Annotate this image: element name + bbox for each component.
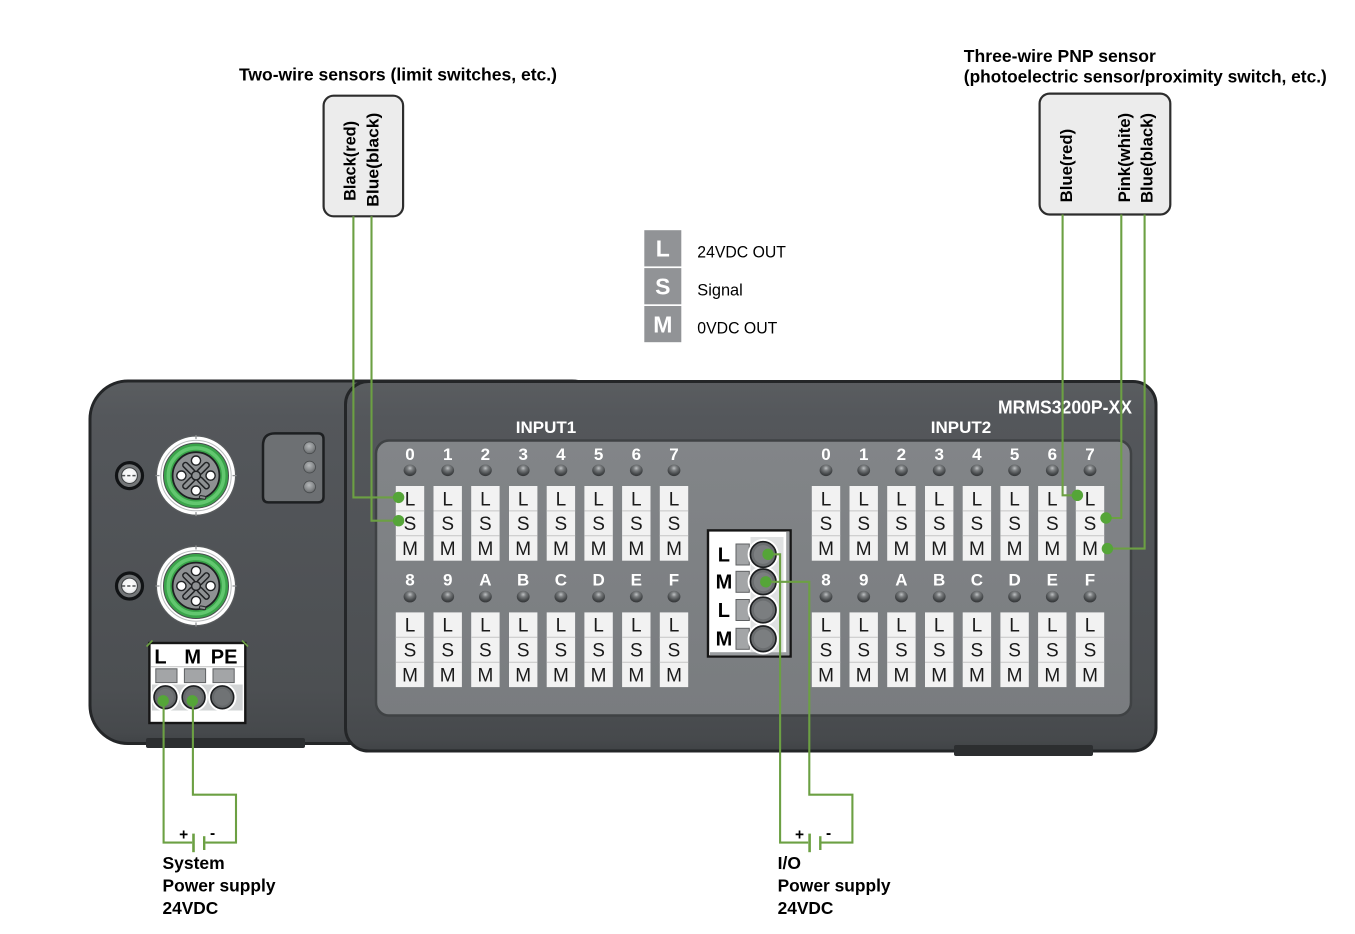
svg-text:INPUT2: INPUT2 <box>931 418 991 437</box>
svg-text:S: S <box>479 641 492 662</box>
svg-text:+: + <box>795 827 804 844</box>
svg-text:+: + <box>179 827 188 844</box>
svg-text:M: M <box>515 666 531 687</box>
svg-text:B: B <box>517 571 529 590</box>
svg-text:M: M <box>591 666 607 687</box>
svg-text:M: M <box>1082 666 1098 687</box>
svg-text:0: 0 <box>821 445 830 464</box>
svg-text:L: L <box>1047 489 1058 510</box>
svg-text:L: L <box>442 489 453 510</box>
svg-text:S: S <box>820 641 833 662</box>
svg-text:L: L <box>821 489 832 510</box>
svg-text:S: S <box>555 514 568 535</box>
svg-text:S: S <box>630 641 643 662</box>
svg-text:L: L <box>934 489 945 510</box>
svg-text:I/O: I/O <box>778 853 801 873</box>
svg-text:L: L <box>858 616 869 637</box>
svg-text:S: S <box>1046 641 1059 662</box>
svg-text:S: S <box>971 514 984 535</box>
svg-text:-: - <box>826 825 831 842</box>
svg-text:E: E <box>631 571 642 590</box>
svg-text:L: L <box>518 489 529 510</box>
svg-text:INPUT1: INPUT1 <box>516 418 576 437</box>
svg-text:Two-wire sensors (limit switch: Two-wire sensors (limit switches, etc.) <box>239 65 557 85</box>
svg-text:M: M <box>1007 539 1023 560</box>
svg-text:M: M <box>856 539 872 560</box>
svg-text:L: L <box>821 616 832 637</box>
svg-text:L: L <box>593 489 604 510</box>
svg-text:S: S <box>479 514 492 535</box>
svg-text:S: S <box>668 641 681 662</box>
svg-text:S: S <box>1084 514 1097 535</box>
svg-text:L: L <box>1085 616 1096 637</box>
svg-text:M: M <box>666 539 682 560</box>
svg-text:7: 7 <box>1085 445 1094 464</box>
svg-text:M: M <box>1044 666 1060 687</box>
svg-text:L: L <box>556 616 567 637</box>
svg-text:L: L <box>480 489 491 510</box>
svg-text:L: L <box>718 544 730 566</box>
svg-text:L: L <box>518 616 529 637</box>
svg-text:2: 2 <box>897 445 906 464</box>
svg-text:M: M <box>1007 666 1023 687</box>
svg-text:3: 3 <box>518 445 527 464</box>
svg-text:S: S <box>555 641 568 662</box>
svg-text:L: L <box>1085 489 1096 510</box>
svg-text:0: 0 <box>405 445 414 464</box>
svg-text:Blue(black): Blue(black) <box>364 113 383 207</box>
svg-text:D: D <box>592 571 604 590</box>
svg-text:S: S <box>820 514 833 535</box>
svg-text:L: L <box>1009 616 1020 637</box>
svg-text:L: L <box>593 616 604 637</box>
svg-text:M: M <box>553 666 569 687</box>
svg-text:1: 1 <box>859 445 868 464</box>
svg-text:7: 7 <box>669 445 678 464</box>
svg-text:M: M <box>969 539 985 560</box>
svg-text:M: M <box>628 666 644 687</box>
svg-text:M: M <box>553 539 569 560</box>
svg-text:M: M <box>477 539 493 560</box>
svg-text:L: L <box>858 489 869 510</box>
svg-text:M: M <box>591 539 607 560</box>
svg-text:S: S <box>668 514 681 535</box>
svg-text:S: S <box>857 641 870 662</box>
svg-text:(photoelectric sensor/proximit: (photoelectric sensor/proximity switch, … <box>964 66 1327 86</box>
svg-text:System: System <box>163 853 225 873</box>
svg-text:8: 8 <box>405 571 414 590</box>
svg-text:S: S <box>933 641 946 662</box>
svg-text:L: L <box>480 616 491 637</box>
svg-text:L: L <box>631 489 642 510</box>
svg-text:M: M <box>716 629 733 651</box>
svg-text:E: E <box>1047 571 1058 590</box>
svg-text:L: L <box>934 616 945 637</box>
svg-text:S: S <box>933 514 946 535</box>
svg-text:L: L <box>669 489 680 510</box>
svg-text:L: L <box>631 616 642 637</box>
svg-text:L: L <box>442 616 453 637</box>
svg-text:L: L <box>896 489 907 510</box>
svg-text:M: M <box>184 647 201 669</box>
svg-text:9: 9 <box>859 571 868 590</box>
svg-text:A: A <box>895 571 907 590</box>
svg-text:4: 4 <box>972 445 982 464</box>
svg-text:M: M <box>402 539 418 560</box>
svg-text:M: M <box>818 539 834 560</box>
svg-text:M: M <box>628 539 644 560</box>
svg-text:F: F <box>1085 571 1095 590</box>
svg-text:M: M <box>440 666 456 687</box>
svg-text:Power supply: Power supply <box>163 876 276 896</box>
svg-text:S: S <box>441 641 454 662</box>
svg-text:S: S <box>517 641 530 662</box>
svg-text:S: S <box>895 514 908 535</box>
svg-text:Blue(red): Blue(red) <box>1057 129 1076 203</box>
svg-text:M: M <box>818 666 834 687</box>
svg-text:S: S <box>1008 514 1021 535</box>
svg-text:M: M <box>653 311 672 337</box>
svg-text:L: L <box>154 647 166 669</box>
svg-text:M: M <box>893 539 909 560</box>
svg-text:24VDC: 24VDC <box>163 898 219 918</box>
svg-text:M: M <box>716 572 733 594</box>
svg-text:24VDC: 24VDC <box>778 898 834 918</box>
svg-text:9: 9 <box>443 571 452 590</box>
svg-text:A: A <box>479 571 491 590</box>
svg-text:C: C <box>971 571 983 590</box>
svg-text:F: F <box>669 571 679 590</box>
svg-text:S: S <box>1008 641 1021 662</box>
svg-text:Black(red): Black(red) <box>341 121 360 201</box>
svg-text:6: 6 <box>632 445 641 464</box>
svg-text:5: 5 <box>1010 445 1019 464</box>
svg-text:L: L <box>972 616 983 637</box>
svg-text:C: C <box>555 571 567 590</box>
svg-text:M: M <box>515 539 531 560</box>
svg-text:0VDC OUT: 0VDC OUT <box>697 318 777 337</box>
svg-text:S: S <box>857 514 870 535</box>
svg-text:M: M <box>666 666 682 687</box>
svg-text:L: L <box>405 489 416 510</box>
svg-text:M: M <box>1044 539 1060 560</box>
svg-text:2: 2 <box>481 445 490 464</box>
svg-text:Power supply: Power supply <box>778 876 891 896</box>
svg-text:S: S <box>441 514 454 535</box>
svg-text:PE: PE <box>211 647 238 669</box>
svg-text:M: M <box>969 666 985 687</box>
svg-text:M: M <box>477 666 493 687</box>
svg-text:3: 3 <box>934 445 943 464</box>
svg-text:1: 1 <box>443 445 452 464</box>
svg-text:S: S <box>630 514 643 535</box>
svg-text:M: M <box>856 666 872 687</box>
svg-text:M: M <box>1082 539 1098 560</box>
svg-text:Three-wire PNP sensor: Three-wire PNP sensor <box>964 46 1156 66</box>
svg-text:L: L <box>896 616 907 637</box>
svg-text:L: L <box>556 489 567 510</box>
svg-text:S: S <box>592 514 605 535</box>
svg-text:M: M <box>931 666 947 687</box>
svg-text:L: L <box>1047 616 1058 637</box>
svg-text:Blue(black): Blue(black) <box>1137 113 1156 203</box>
svg-text:S: S <box>655 273 670 299</box>
svg-text:M: M <box>402 666 418 687</box>
svg-text:MRMS3200P-XX: MRMS3200P-XX <box>998 398 1132 418</box>
svg-text:S: S <box>971 641 984 662</box>
svg-text:S: S <box>404 641 417 662</box>
svg-text:Signal: Signal <box>697 281 743 300</box>
svg-text:Pink(white): Pink(white) <box>1115 113 1134 203</box>
svg-text:S: S <box>404 514 417 535</box>
svg-text:L: L <box>718 600 730 622</box>
svg-text:M: M <box>440 539 456 560</box>
svg-text:S: S <box>895 641 908 662</box>
svg-text:L: L <box>656 236 670 262</box>
svg-text:S: S <box>1084 641 1097 662</box>
svg-text:6: 6 <box>1048 445 1057 464</box>
svg-text:4: 4 <box>556 445 566 464</box>
svg-text:5: 5 <box>594 445 603 464</box>
svg-text:M: M <box>893 666 909 687</box>
svg-text:-: - <box>210 825 215 842</box>
svg-text:L: L <box>972 489 983 510</box>
svg-text:L: L <box>405 616 416 637</box>
svg-text:8: 8 <box>821 571 830 590</box>
svg-text:B: B <box>933 571 945 590</box>
svg-text:M: M <box>931 539 947 560</box>
svg-text:24VDC OUT: 24VDC OUT <box>697 243 786 262</box>
svg-text:L: L <box>669 616 680 637</box>
svg-text:L: L <box>1009 489 1020 510</box>
svg-text:D: D <box>1008 571 1020 590</box>
svg-text:S: S <box>592 641 605 662</box>
svg-text:S: S <box>1046 514 1059 535</box>
svg-text:S: S <box>517 514 530 535</box>
